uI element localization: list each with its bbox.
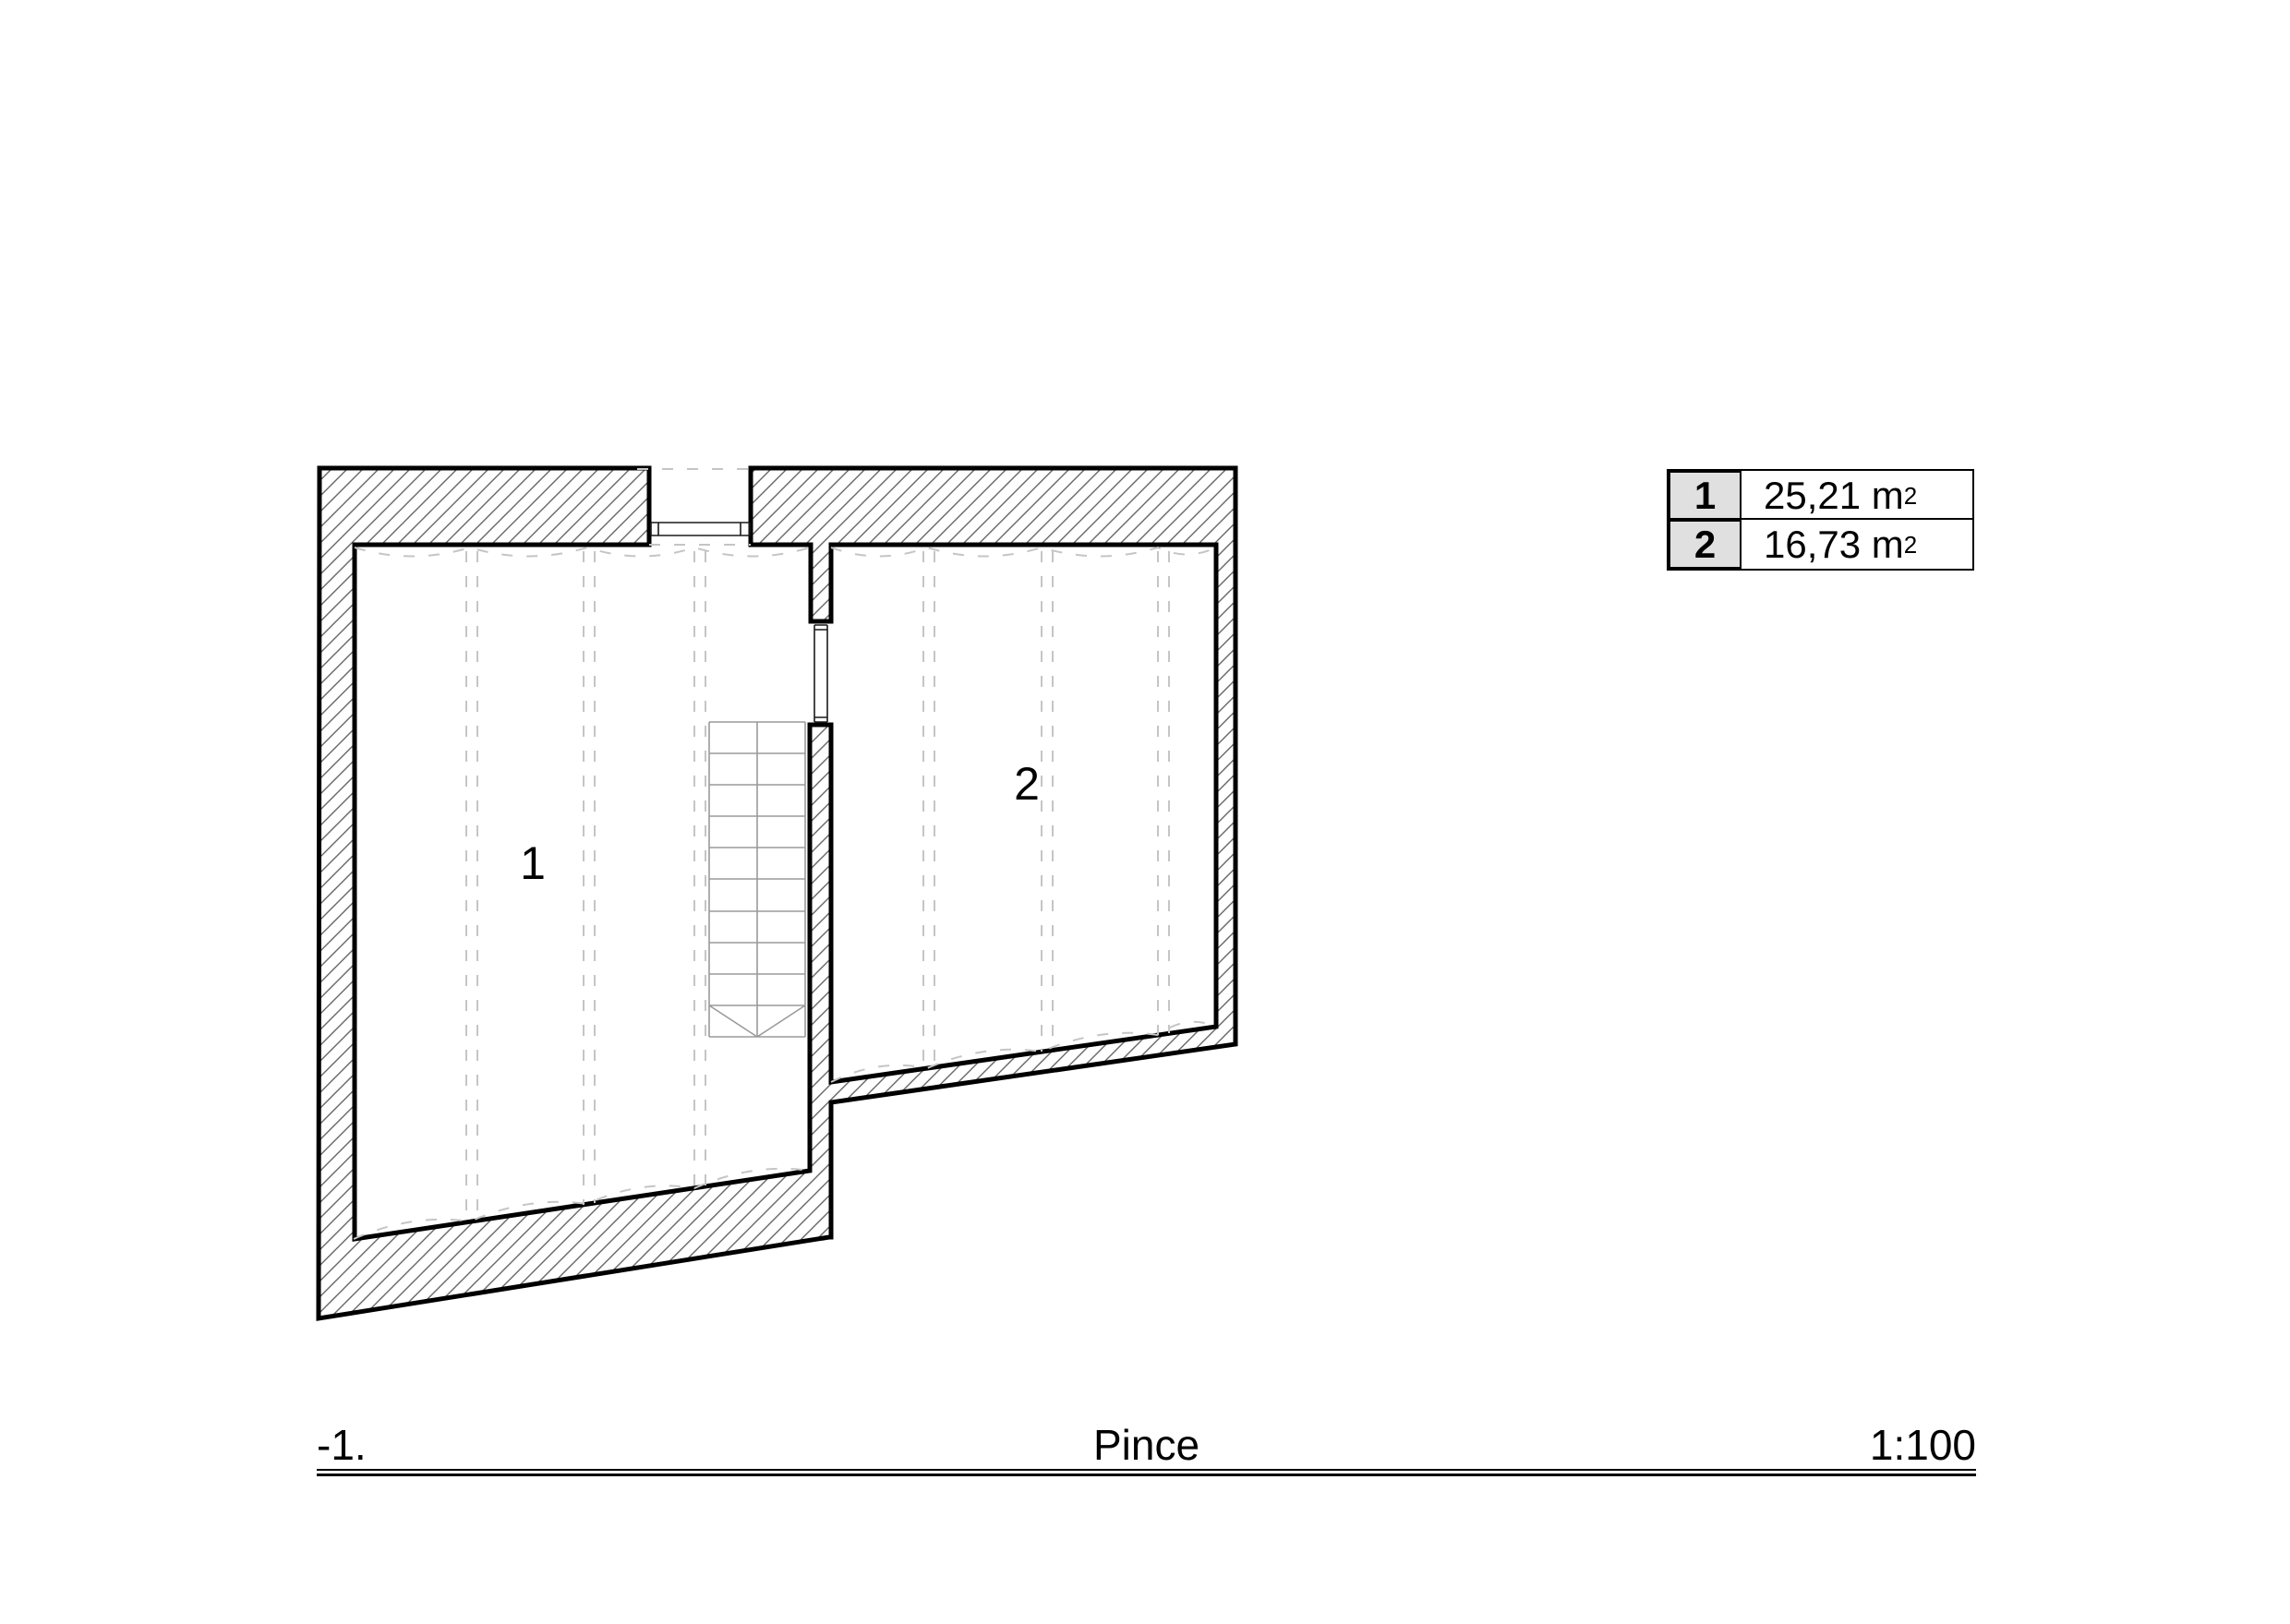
vault-arc-dashed-lines <box>354 469 1216 1239</box>
drawing-sheet: 1 2 1 25,21 m2 2 16,73 m2 -1. Pince 1:10… <box>0 0 2290 1624</box>
legend-area-value: 25,21 m <box>1764 474 1904 518</box>
floor-plan-drawing <box>0 0 2290 1624</box>
legend-room-number-cell: 2 <box>1667 518 1743 571</box>
drawing-scale: 1:100 <box>1870 1423 1976 1467</box>
area-legend-table: 1 25,21 m2 2 16,73 m2 <box>1667 469 1974 576</box>
drawing-title: Pince <box>317 1423 1976 1467</box>
legend-area-cell: 16,73 m2 <box>1740 518 1974 571</box>
legend-room-number-cell: 1 <box>1667 469 1743 522</box>
title-rule <box>317 1469 1976 1476</box>
window-opening-lines <box>651 523 750 535</box>
door-opening-lines <box>814 625 827 722</box>
room-label-1: 1 <box>520 840 546 886</box>
wall-outline <box>319 468 1235 1318</box>
stair <box>709 722 805 1037</box>
title-bar: -1. Pince 1:100 <box>317 1423 1976 1467</box>
legend-area-value: 16,73 m <box>1764 523 1904 567</box>
room-label-2: 2 <box>1014 761 1040 807</box>
legend-area-cell: 25,21 m2 <box>1740 469 1974 522</box>
